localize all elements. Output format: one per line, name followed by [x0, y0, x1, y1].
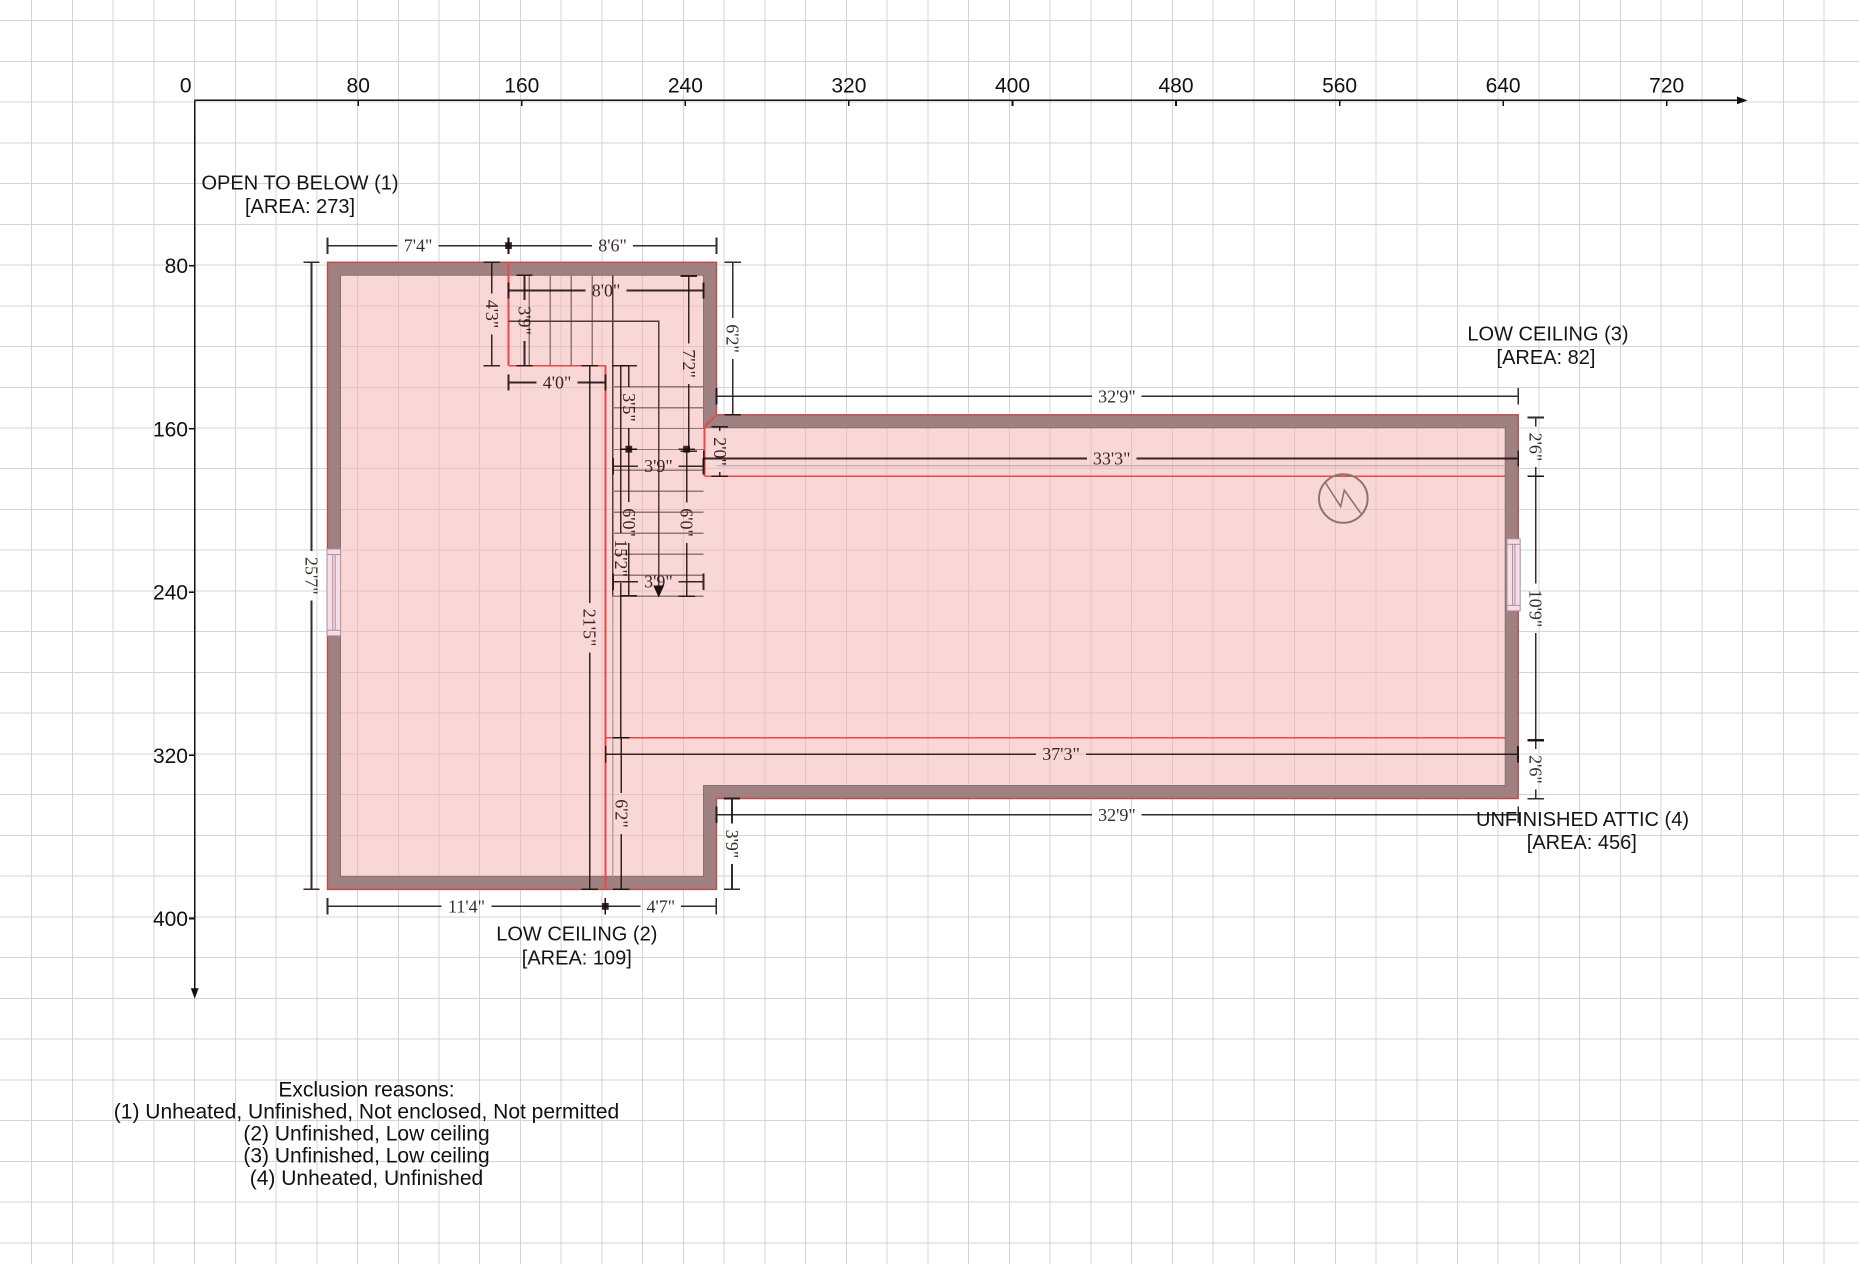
svg-text:[AREA: 109]: [AREA: 109]: [522, 948, 632, 970]
svg-text:8'0": 8'0": [592, 280, 621, 300]
svg-text:480: 480: [1158, 75, 1193, 98]
svg-text:2'0": 2'0": [710, 437, 730, 466]
svg-text:320: 320: [153, 745, 188, 768]
svg-text:3'9": 3'9": [644, 572, 673, 592]
svg-text:3'9": 3'9": [722, 830, 742, 859]
svg-text:[AREA: 273]: [AREA: 273]: [245, 196, 355, 218]
svg-text:(4) Unheated, Unfinished: (4) Unheated, Unfinished: [250, 1167, 483, 1190]
svg-text:160: 160: [153, 418, 188, 441]
svg-text:32'9": 32'9": [1098, 386, 1136, 406]
svg-text:6'2": 6'2": [611, 799, 631, 828]
svg-text:15'2": 15'2": [611, 539, 631, 577]
svg-text:32'9": 32'9": [1098, 805, 1136, 825]
svg-text:2'6": 2'6": [1526, 755, 1546, 784]
svg-text:(1) Unheated, Unfinished, Not: (1) Unheated, Unfinished, Not enclosed, …: [114, 1101, 619, 1124]
svg-text:4'0": 4'0": [543, 372, 572, 392]
svg-text:[AREA: 82]: [AREA: 82]: [1497, 347, 1596, 369]
svg-text:LOW CEILING (2): LOW CEILING (2): [496, 923, 657, 945]
svg-text:6'0": 6'0": [619, 508, 639, 537]
svg-text:400: 400: [153, 908, 188, 931]
svg-text:10'9": 10'9": [1526, 590, 1546, 628]
svg-text:(3) Unfinished, Low ceiling: (3) Unfinished, Low ceiling: [243, 1145, 489, 1168]
svg-text:(2) Unfinished, Low ceiling: (2) Unfinished, Low ceiling: [243, 1123, 489, 1146]
svg-text:Exclusion reasons:: Exclusion reasons:: [278, 1079, 454, 1102]
svg-text:560: 560: [1322, 75, 1357, 98]
svg-text:8'6": 8'6": [598, 236, 627, 256]
svg-text:400: 400: [995, 75, 1030, 98]
svg-text:3'9": 3'9": [644, 456, 673, 476]
svg-text:OPEN TO BELOW (1): OPEN TO BELOW (1): [201, 173, 398, 195]
svg-text:240: 240: [153, 582, 188, 605]
svg-text:240: 240: [668, 75, 703, 98]
svg-text:3'5": 3'5": [619, 393, 639, 422]
svg-text:37'3": 37'3": [1042, 744, 1080, 764]
svg-text:UNFINISHED ATTIC (4): UNFINISHED ATTIC (4): [1476, 809, 1689, 831]
svg-text:4'7": 4'7": [647, 896, 676, 916]
svg-text:0: 0: [180, 75, 192, 98]
svg-text:11'4": 11'4": [448, 896, 485, 916]
svg-text:3'9": 3'9": [515, 306, 535, 335]
svg-text:33'3": 33'3": [1093, 448, 1131, 468]
svg-text:7'2": 7'2": [679, 349, 699, 378]
svg-text:320: 320: [831, 75, 866, 98]
svg-text:25'7": 25'7": [302, 557, 322, 595]
svg-text:7'4": 7'4": [404, 236, 433, 256]
svg-text:21'5": 21'5": [580, 609, 600, 647]
svg-text:160: 160: [504, 75, 539, 98]
svg-text:[AREA: 456]: [AREA: 456]: [1527, 832, 1637, 854]
svg-text:6'0": 6'0": [677, 508, 697, 537]
svg-text:LOW CEILING (3): LOW CEILING (3): [1467, 324, 1628, 346]
svg-text:640: 640: [1486, 75, 1521, 98]
svg-text:720: 720: [1649, 75, 1684, 98]
svg-text:80: 80: [347, 75, 370, 98]
svg-text:6'2": 6'2": [723, 324, 743, 353]
svg-text:2'6": 2'6": [1526, 433, 1546, 462]
svg-text:80: 80: [165, 255, 188, 278]
svg-text:4'3": 4'3": [482, 300, 502, 329]
